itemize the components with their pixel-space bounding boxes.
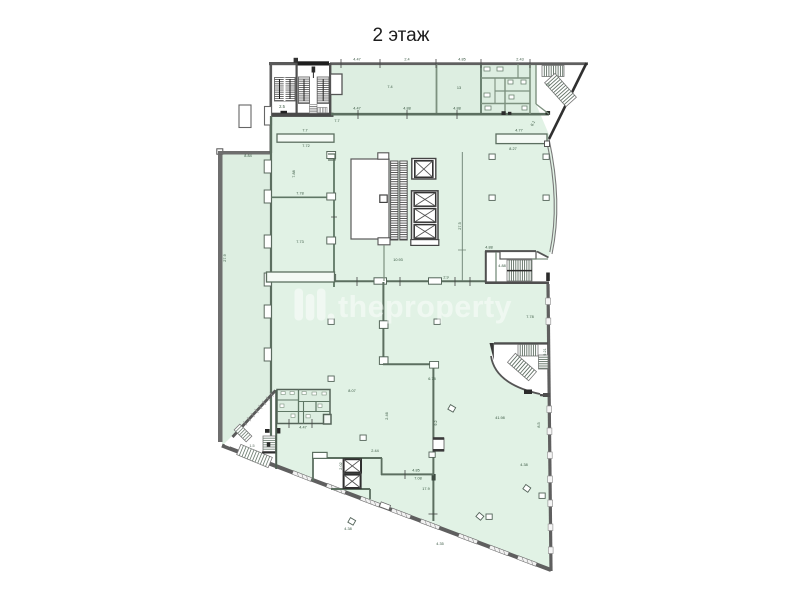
svg-text:7.7: 7.7 bbox=[302, 129, 307, 133]
svg-text:10.93: 10.93 bbox=[393, 258, 403, 262]
svg-text:2.44: 2.44 bbox=[371, 449, 378, 453]
svg-text:2.02: 2.02 bbox=[339, 462, 343, 469]
svg-text:4.47: 4.47 bbox=[353, 107, 360, 111]
svg-text:7.4: 7.4 bbox=[387, 85, 392, 89]
svg-text:4.88: 4.88 bbox=[485, 246, 492, 250]
svg-text:8.5: 8.5 bbox=[537, 422, 541, 427]
svg-text:8.07: 8.07 bbox=[348, 389, 355, 393]
svg-text:4.77: 4.77 bbox=[515, 129, 522, 133]
svg-text:8.84: 8.84 bbox=[244, 154, 251, 158]
svg-text:7.88: 7.88 bbox=[292, 170, 296, 177]
svg-text:7.72: 7.72 bbox=[302, 144, 309, 148]
svg-text:4.35: 4.35 bbox=[436, 542, 443, 546]
svg-text:4.88: 4.88 bbox=[498, 264, 505, 268]
svg-text:7.78: 7.78 bbox=[296, 192, 303, 196]
svg-text:27.9: 27.9 bbox=[223, 254, 227, 261]
svg-text:2 этаж: 2 этаж bbox=[373, 25, 430, 46]
svg-text:9.2: 9.2 bbox=[434, 420, 438, 425]
svg-text:2.43: 2.43 bbox=[516, 58, 523, 62]
svg-text:4.85: 4.85 bbox=[412, 469, 419, 473]
svg-text:13: 13 bbox=[457, 86, 461, 90]
svg-text:41.98: 41.98 bbox=[495, 416, 505, 420]
svg-text:7.78: 7.78 bbox=[526, 315, 533, 319]
svg-text:16: 16 bbox=[546, 83, 550, 87]
svg-text:4.88: 4.88 bbox=[403, 107, 410, 111]
svg-text:17.9: 17.9 bbox=[422, 487, 429, 491]
svg-text:4.88: 4.88 bbox=[453, 107, 460, 111]
svg-text:2.5: 2.5 bbox=[279, 104, 285, 109]
svg-text:2.9: 2.9 bbox=[443, 276, 448, 280]
svg-text:2.46: 2.46 bbox=[385, 412, 389, 419]
svg-text:8.27: 8.27 bbox=[509, 147, 516, 151]
svg-text:7.08: 7.08 bbox=[414, 477, 421, 481]
svg-text:7.7: 7.7 bbox=[334, 119, 339, 123]
svg-text:1.5: 1.5 bbox=[249, 444, 254, 448]
svg-text:theproperty: theproperty bbox=[338, 290, 512, 324]
svg-text:4.85: 4.85 bbox=[458, 58, 465, 62]
svg-text:7.73: 7.73 bbox=[296, 240, 303, 244]
svg-text:4.47: 4.47 bbox=[353, 58, 360, 62]
svg-text:2.4: 2.4 bbox=[404, 58, 409, 62]
svg-text:4.38: 4.38 bbox=[520, 463, 527, 467]
svg-text:9.21: 9.21 bbox=[543, 348, 547, 355]
svg-text:4.47: 4.47 bbox=[299, 426, 306, 430]
svg-text:4.38: 4.38 bbox=[344, 527, 351, 531]
svg-text:27.5: 27.5 bbox=[458, 222, 462, 229]
svg-text:6.78: 6.78 bbox=[428, 377, 435, 381]
